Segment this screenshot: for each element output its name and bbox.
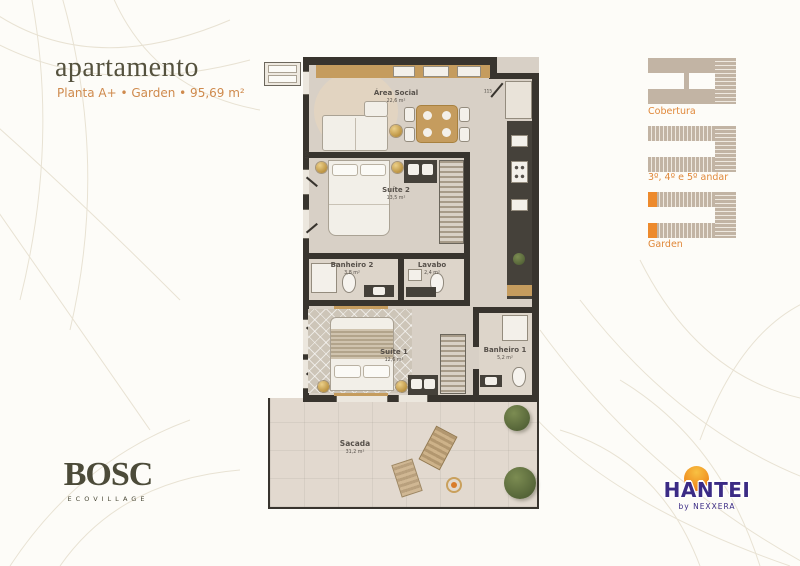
lamp-icon xyxy=(392,162,403,173)
pillow-icon xyxy=(332,164,358,176)
sink-icon xyxy=(422,164,433,175)
balcony-table-icon xyxy=(446,477,462,493)
room-label-sacada: Sacada 31,2 m² xyxy=(320,439,390,457)
room-label-lavabo: Lavabo 2,4 m² xyxy=(397,261,467,278)
pillow-icon xyxy=(360,164,386,176)
lamp-icon xyxy=(316,162,327,173)
lavabo-vanity xyxy=(406,287,436,297)
bed-fold-line xyxy=(329,204,389,205)
sink-icon xyxy=(485,377,497,385)
window xyxy=(398,395,428,402)
keyplan-units xyxy=(715,126,736,172)
dimension-label: 115 xyxy=(484,89,492,94)
page-title: apartamento xyxy=(55,52,199,84)
dimension-label: 410 xyxy=(305,151,310,159)
kitchen-sink-icon xyxy=(423,66,449,77)
wall xyxy=(303,152,470,158)
keyplan-core xyxy=(684,73,689,89)
tree-icon xyxy=(504,405,530,431)
dining-table xyxy=(416,105,458,143)
kitchen-shelf xyxy=(507,285,532,296)
room-label-banheiro-1: Banheiro 1 5,2 m² xyxy=(470,346,540,363)
sofa xyxy=(322,115,388,151)
bathroom1-vanity xyxy=(480,375,502,387)
sink-icon xyxy=(408,164,419,175)
fridge-icon xyxy=(505,81,532,119)
keyplan-label-garden: Garden xyxy=(648,239,683,250)
wall xyxy=(473,313,479,347)
window xyxy=(303,209,309,239)
keyplan-units xyxy=(715,58,736,104)
bosc-logo: BOSC ECOVILLAGE xyxy=(56,458,160,503)
sofa-cushion-line xyxy=(355,118,356,150)
plate-icon xyxy=(442,111,451,120)
highlighted-unit xyxy=(648,192,657,207)
cooktop-icon xyxy=(393,66,415,77)
wall xyxy=(303,253,470,259)
highlighted-unit xyxy=(648,223,657,238)
pillow-icon xyxy=(334,365,361,378)
wall xyxy=(473,369,479,395)
wardrobe-suite-2 xyxy=(439,160,464,244)
chair-icon xyxy=(459,127,470,142)
bosc-tagline: ECOVILLAGE xyxy=(56,495,160,503)
room-label-area-social: Área Social 22,6 m² xyxy=(361,89,431,106)
keyplan-cobertura xyxy=(648,58,736,104)
suite1-vanity xyxy=(408,375,438,395)
window xyxy=(303,169,309,195)
ac-unit-icon xyxy=(268,75,297,83)
plant-icon xyxy=(513,253,525,265)
wardrobe-suite-1 xyxy=(440,334,466,394)
chair-icon xyxy=(404,107,415,122)
wall xyxy=(473,307,539,313)
plate-icon xyxy=(423,111,432,120)
pillow-icon xyxy=(363,365,390,378)
keyplan-label-cobertura: Cobertura xyxy=(648,106,696,117)
ac-unit-icon xyxy=(268,65,297,73)
keyplan-units xyxy=(715,192,736,238)
lamp-icon xyxy=(318,381,329,392)
window xyxy=(303,71,309,95)
bosc-wordmark: BOSC xyxy=(56,458,160,492)
kitchen-sink-icon xyxy=(511,135,528,147)
floor-plan: Área Social 22,6 m² Suíte 2 13,5 m² Banh… xyxy=(258,57,542,513)
shower-icon xyxy=(502,315,528,341)
keyplan-andares xyxy=(648,126,736,172)
sink-icon xyxy=(424,379,435,389)
double-sink-vanity xyxy=(404,160,437,183)
lamp-icon xyxy=(396,381,407,392)
window xyxy=(336,395,388,402)
keyplan-label-andares: 3º, 4º e 5º andar xyxy=(648,172,728,183)
plate-icon xyxy=(442,128,451,137)
counter-appliance-icon xyxy=(511,199,528,211)
tree-icon xyxy=(504,467,536,499)
table-decor-icon xyxy=(451,482,457,488)
side-table-icon xyxy=(390,125,402,137)
stove-icon xyxy=(511,161,528,183)
chair-icon xyxy=(459,107,470,122)
bathroom2-vanity xyxy=(364,285,394,297)
curtain-strip xyxy=(334,306,388,309)
sink-icon xyxy=(411,379,422,389)
keyplan-garden xyxy=(648,192,736,238)
chair-icon xyxy=(404,127,415,142)
wall xyxy=(303,57,493,65)
ac-ledge xyxy=(264,62,301,86)
hantei-wordmark: HANTEI xyxy=(657,478,757,502)
room-label-suite-2: Suíte 2 13,5 m² xyxy=(361,186,431,203)
hantei-byline: by NEXXERA xyxy=(657,502,757,511)
room-label-banheiro-2: Banheiro 2 3,8 m² xyxy=(317,261,387,278)
page-subtitle: Planta A+ • Garden • 95,69 m² xyxy=(57,86,245,100)
room-label-suite-1: Suíte 1 12,6 m² xyxy=(359,348,429,365)
curtain-strip xyxy=(334,393,388,396)
counter-appliance-icon xyxy=(457,66,481,77)
sink-icon xyxy=(373,287,385,295)
brochure-page: apartamento Planta A+ • Garden • 95,69 m… xyxy=(0,0,800,566)
plate-icon xyxy=(423,128,432,137)
toilet-icon xyxy=(512,367,526,387)
